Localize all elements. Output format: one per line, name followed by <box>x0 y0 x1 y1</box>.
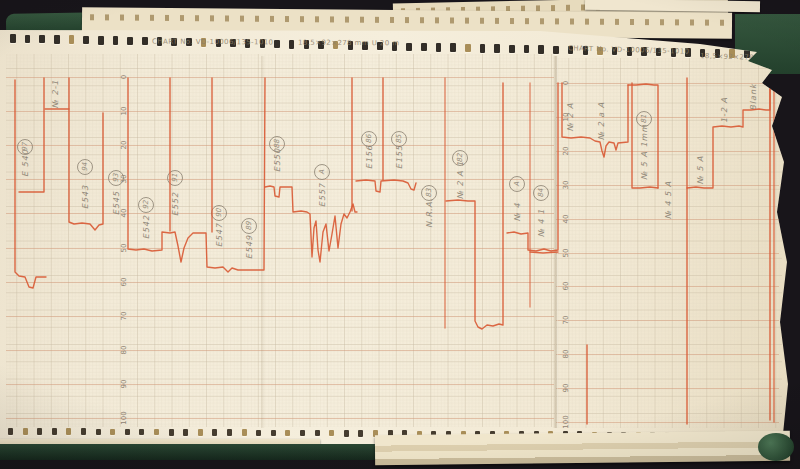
chart-paper: 0102030405060708090100010203040506070809… <box>0 0 800 469</box>
ink-trace <box>15 80 46 288</box>
sprocket-holes-faded <box>90 14 724 26</box>
ink-trace <box>687 82 770 188</box>
ink-trace <box>69 78 103 230</box>
ink-trace <box>507 83 558 251</box>
ink-trace <box>446 83 503 329</box>
photo-chart-recorder-binder: 0102030405060708090100010203040506070809… <box>0 0 800 469</box>
recorder-ink-traces <box>0 0 800 469</box>
folded-sheet-bottom-right <box>375 431 790 465</box>
ink-trace <box>128 78 265 272</box>
binder-ring <box>758 433 794 461</box>
ink-trace <box>356 180 416 192</box>
ink-trace <box>19 78 44 192</box>
ink-trace <box>530 252 558 253</box>
ink-trace <box>562 83 628 157</box>
ink-trace <box>632 83 658 188</box>
ink-trace <box>265 186 357 262</box>
